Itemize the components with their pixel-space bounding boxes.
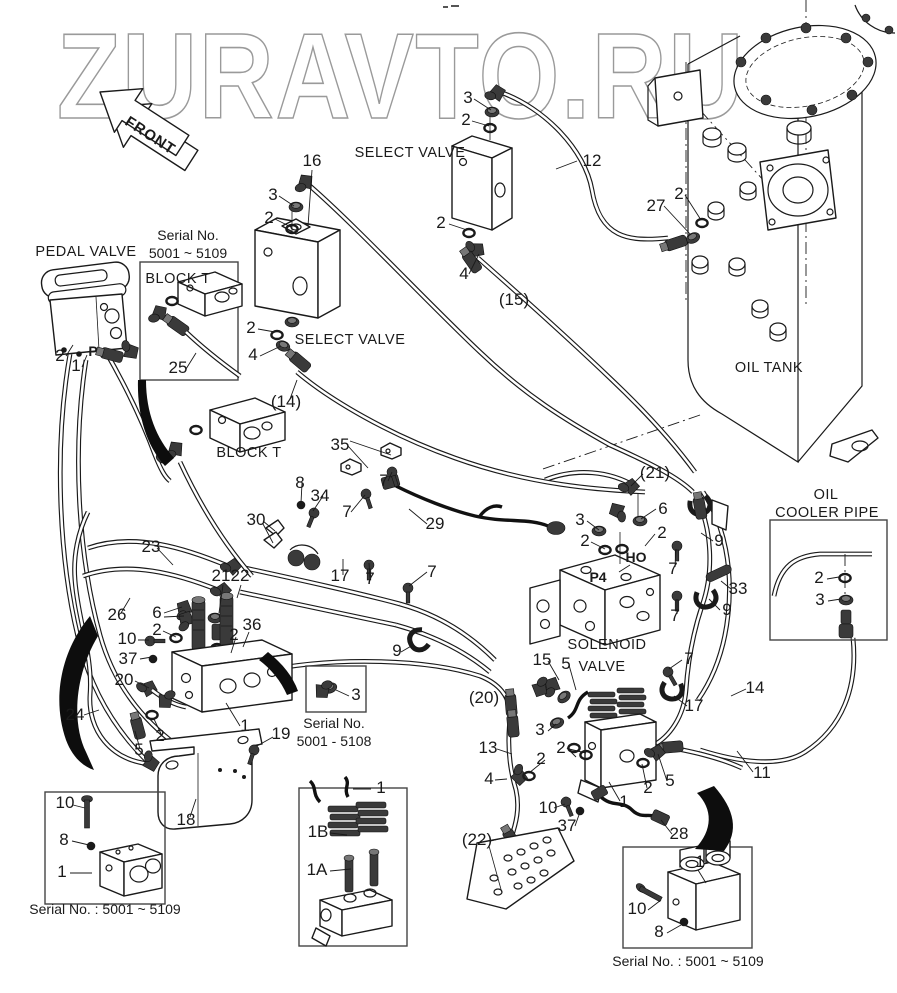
part-number-8: 8 — [59, 830, 68, 849]
part-number-12: 12 — [583, 151, 602, 170]
part-number-22: (22) — [462, 830, 492, 849]
part-number-36: 36 — [243, 615, 262, 634]
part-number-2: 2 — [264, 208, 273, 227]
part-number-17: 17 — [331, 566, 350, 585]
serial-note-serial-no: Serial No. — [157, 227, 218, 243]
mounting-plate-18 — [150, 729, 262, 829]
part-number-9: 9 — [722, 600, 731, 619]
part-number-19: 19 — [272, 724, 291, 743]
part-number-30: 30 — [247, 510, 266, 529]
part-number-2: 2 — [657, 523, 666, 542]
part-number-34: 34 — [311, 486, 330, 505]
part-number-2: 2 — [229, 625, 238, 644]
part-number-4: 4 — [248, 345, 257, 364]
part-number-7: 7 — [427, 562, 436, 581]
part-number-37: 37 — [558, 816, 577, 835]
part-number-10: 10 — [539, 798, 558, 817]
component-label-cooler-pipe: COOLER PIPE — [775, 505, 879, 521]
part-number-8: 8 — [654, 922, 663, 941]
component-label-select-valve: SELECT VALVE — [295, 332, 406, 348]
part-number-2: 2 — [580, 531, 589, 550]
wire-harness-29 — [264, 443, 565, 603]
serial-note-5001-5109: 5001 ~ 5109 — [149, 245, 227, 261]
part-number-7: 7 — [365, 569, 374, 588]
component-label-oil-tank: OIL TANK — [735, 360, 803, 376]
component-label-oil: OIL — [814, 487, 839, 503]
part-number-1: 1 — [71, 356, 80, 375]
part-number-2: 2 — [152, 620, 161, 639]
pilot-valve-1 — [150, 593, 292, 830]
part-number-2: 2 — [674, 184, 683, 203]
part-number-22: 22 — [231, 566, 250, 585]
serial-note-serial-no-5001-5109: Serial No. : 5001 ~ 5109 — [29, 901, 181, 917]
part-number-18: 18 — [177, 810, 196, 829]
part-number-8: 8 — [295, 473, 304, 492]
tank-flange — [760, 150, 836, 230]
part-number-7: 7 — [342, 502, 351, 521]
part-number-1: 1 — [695, 852, 704, 871]
hose-13-fittings — [499, 689, 534, 853]
serial-note-serial-no-5001-5109: Serial No. : 5001 ~ 5109 — [612, 953, 764, 969]
port-label-p4: P4 — [589, 569, 606, 585]
oil-cooler-pipe — [770, 520, 887, 640]
part-number-3: 3 — [351, 685, 360, 704]
part-number-26: 26 — [108, 605, 127, 624]
part-number-5: 5 — [134, 740, 143, 759]
part-number-17: 17 — [685, 696, 704, 715]
component-label-block-t: BLOCK T — [216, 445, 281, 461]
part-number-1: 1 — [376, 778, 385, 797]
hydraulic-piping-diagram: ZURAVTO.RU FRONT — [0, 0, 897, 993]
part-number-6: 6 — [658, 499, 667, 518]
part-number-7: 7 — [379, 471, 388, 490]
component-label-valve: VALVE — [578, 659, 625, 675]
part-number-37: 37 — [119, 649, 138, 668]
part-number-1a: 1A — [307, 860, 328, 879]
part-number-25: 25 — [169, 358, 188, 377]
component-label-select-valve: SELECT VALVE — [355, 145, 466, 161]
callout-labels: 1632321224272(15)24(14)25213578343072917… — [29, 88, 879, 969]
part-number-10: 10 — [56, 793, 75, 812]
part-number-3: 3 — [268, 185, 277, 204]
part-number-23: 23 — [142, 537, 161, 556]
serial-note-serial-no: Serial No. — [303, 715, 364, 731]
part-number-3: 3 — [535, 720, 544, 739]
part-number-3: 3 — [463, 88, 472, 107]
part-number-21: (21) — [640, 463, 670, 482]
part-number-13: 13 — [479, 738, 498, 757]
part-number-16: 16 — [303, 151, 322, 170]
part-number-5: 5 — [665, 771, 674, 790]
serial-note-5001-5108: 5001 - 5108 — [297, 733, 372, 749]
part-number-10: 10 — [118, 629, 137, 648]
part-number-9: 9 — [714, 531, 723, 550]
part-number-20: (20) — [469, 688, 499, 707]
port-label-p: P — [88, 343, 97, 359]
part-number-7: 7 — [684, 649, 693, 668]
parts-diagram-page: ZURAVTO.RU FRONT — [0, 0, 897, 993]
part-number-21: 21 — [212, 566, 231, 585]
part-number-28: 28 — [670, 824, 689, 843]
part-number-3: 3 — [575, 510, 584, 529]
part-number-2: 2 — [643, 778, 652, 797]
part-number-7: 7 — [668, 559, 677, 578]
part-number-2: 2 — [536, 749, 545, 768]
part-number-15: (15) — [499, 290, 529, 309]
solenoid-inset-bottom-right — [623, 841, 752, 948]
component-label-solenoid: SOLENOID — [568, 637, 647, 653]
part-number-1: 1 — [619, 792, 628, 811]
part-number-27: 27 — [647, 196, 666, 215]
part-number-35: 35 — [331, 435, 350, 454]
part-number-2: 2 — [814, 568, 823, 587]
part-number-2: 2 — [55, 346, 64, 365]
part-number-14: (14) — [271, 392, 301, 411]
part-number-10: 10 — [628, 899, 647, 918]
part-number-2: 2 — [155, 726, 164, 745]
part-number-2: 2 — [556, 738, 565, 757]
part-number-1: 1 — [57, 862, 66, 881]
part-number-1: 1 — [240, 716, 249, 735]
part-number-7: 7 — [670, 606, 679, 625]
part-number-1b: 1B — [308, 822, 329, 841]
part-number-24: 24 — [66, 705, 85, 724]
part-number-2: 2 — [461, 110, 470, 129]
part-number-33: 33 — [729, 579, 748, 598]
part-number-2: 2 — [246, 318, 255, 337]
part-number-29: 29 — [426, 514, 445, 533]
port-label-ho: HO — [626, 549, 647, 565]
part-number-14: 14 — [746, 678, 765, 697]
part-number-20: 20 — [115, 670, 134, 689]
part-number-11: 11 — [753, 763, 771, 782]
component-label-block-t: BLOCK T — [145, 271, 210, 287]
wire-harness-28 — [590, 785, 670, 827]
part-number-3: 3 — [815, 590, 824, 609]
page-smudge-mark — [443, 6, 459, 7]
part-number-15: 15 — [533, 650, 552, 669]
part-number-9: 9 — [392, 641, 401, 660]
part-number-2: 2 — [436, 213, 445, 232]
part-number-5: 5 — [561, 654, 570, 673]
part-number-4: 4 — [459, 264, 468, 283]
component-label-pedal-valve: PEDAL VALVE — [35, 244, 136, 260]
part-number-4: 4 — [484, 769, 493, 788]
